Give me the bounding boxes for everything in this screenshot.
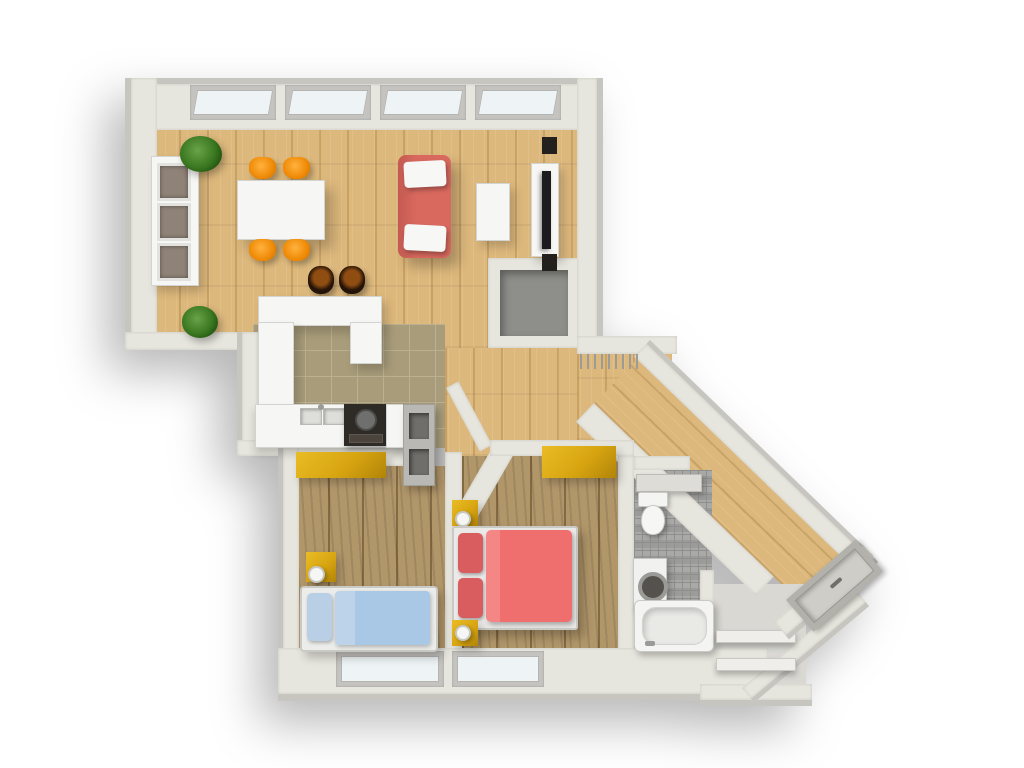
potted-plant-bottom (182, 306, 218, 338)
dining-chair-4 (283, 239, 310, 261)
sofa (398, 155, 451, 258)
bed-pillow-top (458, 533, 483, 573)
living-window-1 (190, 85, 276, 120)
bedroom-wardrobe (542, 446, 616, 478)
washer-door (638, 572, 668, 602)
kids-lamp (308, 566, 325, 583)
cabinet-glass-panel-2 (157, 203, 191, 241)
toilet-bowl (641, 505, 665, 535)
sofa-cushion-top (403, 160, 446, 188)
bathtub-basin (642, 607, 707, 645)
tv-cabinet (531, 163, 559, 257)
window-glass (193, 90, 273, 115)
coffee-table (476, 183, 510, 241)
bathtub-faucet (645, 641, 655, 646)
dining-table (237, 180, 325, 240)
peninsula-counter-stub (350, 322, 382, 364)
potted-plant-top (180, 136, 222, 172)
window-glass (341, 656, 439, 682)
display-cabinet (151, 156, 199, 286)
cabinet-glass-panel-1 (157, 163, 191, 201)
floorplan-stage (0, 0, 1024, 768)
kids-bed-duvet (335, 591, 430, 645)
sink-basin-left (300, 408, 322, 425)
window-glass (457, 656, 539, 682)
kitchen-shelf-unit (403, 404, 435, 486)
dining-chair-2 (283, 157, 310, 179)
apartment-floorplan (0, 0, 1024, 768)
kids-bed-pillow (307, 593, 332, 641)
bedroom-window (452, 651, 544, 687)
sink-basin-right (323, 408, 345, 425)
sink-faucet (318, 404, 324, 410)
kids-wardrobe (296, 452, 386, 478)
stove (344, 404, 386, 446)
bedroom-lamp-bottom (455, 625, 471, 641)
bedroom-lamp-top (455, 511, 471, 527)
living-window-2 (285, 85, 371, 120)
bed-duvet (486, 530, 572, 622)
oven-handle (349, 434, 383, 443)
peninsula-counter-left (258, 322, 294, 408)
storage-shelf-2 (716, 658, 796, 671)
cabinet-glass-panel-3 (157, 243, 191, 281)
double-bed-frame (452, 526, 578, 630)
tv-screen (542, 171, 551, 249)
bathtub (634, 600, 714, 652)
living-window-3 (380, 85, 466, 120)
radiator (580, 354, 638, 369)
dining-chair-1 (249, 157, 276, 179)
bathroom-shelf (636, 474, 702, 492)
living-window-4 (475, 85, 561, 120)
tv-speaker-top (542, 137, 557, 154)
dining-chair-3 (249, 239, 276, 261)
window-glass (383, 90, 463, 115)
tv-speaker-bottom (542, 254, 557, 271)
shelf-cubby-2 (409, 449, 429, 475)
bar-stool-1 (308, 266, 334, 294)
window-glass (478, 90, 558, 115)
bar-stool-2 (339, 266, 365, 294)
living-bottom-left-wall (125, 332, 243, 350)
kids-window (336, 651, 444, 687)
bathroom-top-wall (634, 456, 690, 470)
stove-burner (355, 409, 377, 431)
bed-pillow-bottom (458, 578, 483, 618)
kids-bed-frame (300, 586, 438, 652)
shelf-cubby-1 (409, 413, 429, 439)
closet-floor (500, 270, 568, 336)
sofa-cushion-bottom (403, 224, 446, 252)
living-right-wall (577, 78, 603, 352)
window-glass (288, 90, 368, 115)
